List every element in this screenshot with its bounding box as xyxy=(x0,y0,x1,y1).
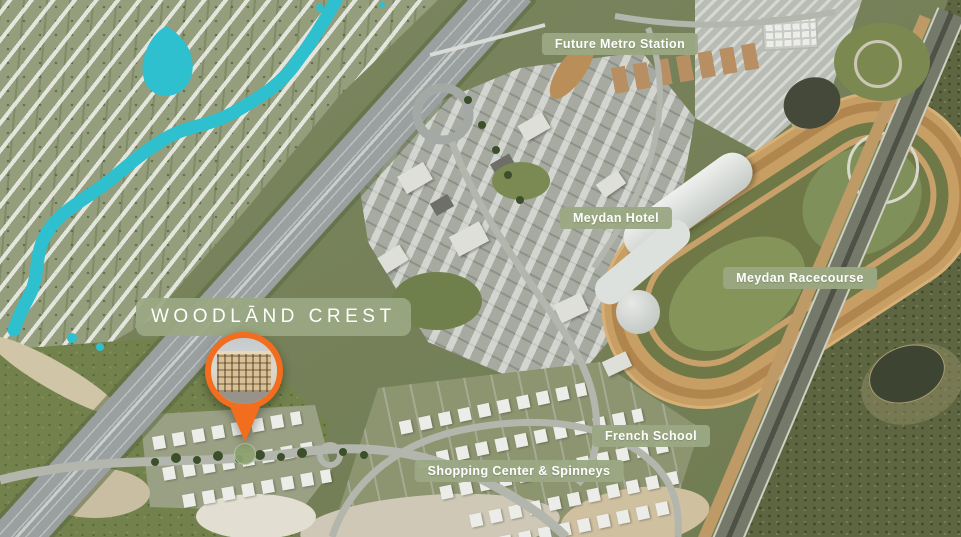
hotel-dome xyxy=(616,290,660,334)
stables-building xyxy=(761,15,819,52)
label-meydan-hotel: Meydan Hotel xyxy=(560,207,672,229)
landmark-label: Future Metro Station xyxy=(555,37,685,51)
district-park xyxy=(492,162,550,200)
project-name: WOODLĀND CREST xyxy=(151,306,396,327)
landmark-label: French School xyxy=(605,429,697,443)
label-french-school: French School xyxy=(592,425,710,447)
location-dot xyxy=(234,443,256,465)
landmark-label: Meydan Hotel xyxy=(573,211,659,225)
landmark-label: Meydan Racecourse xyxy=(736,271,864,285)
label-shopping-center-spinneys: Shopping Center & Spinneys xyxy=(415,460,624,482)
label-future-metro-station: Future Metro Station xyxy=(542,33,698,55)
satellite-location-map: Future Metro Station Meydan Hotel Meydan… xyxy=(0,0,961,537)
project-title-label: WOODLĀND CREST xyxy=(136,298,411,336)
mound-loop-path xyxy=(854,40,902,88)
landmark-label: Shopping Center & Spinneys xyxy=(428,464,611,478)
label-meydan-racecourse: Meydan Racecourse xyxy=(723,267,877,289)
